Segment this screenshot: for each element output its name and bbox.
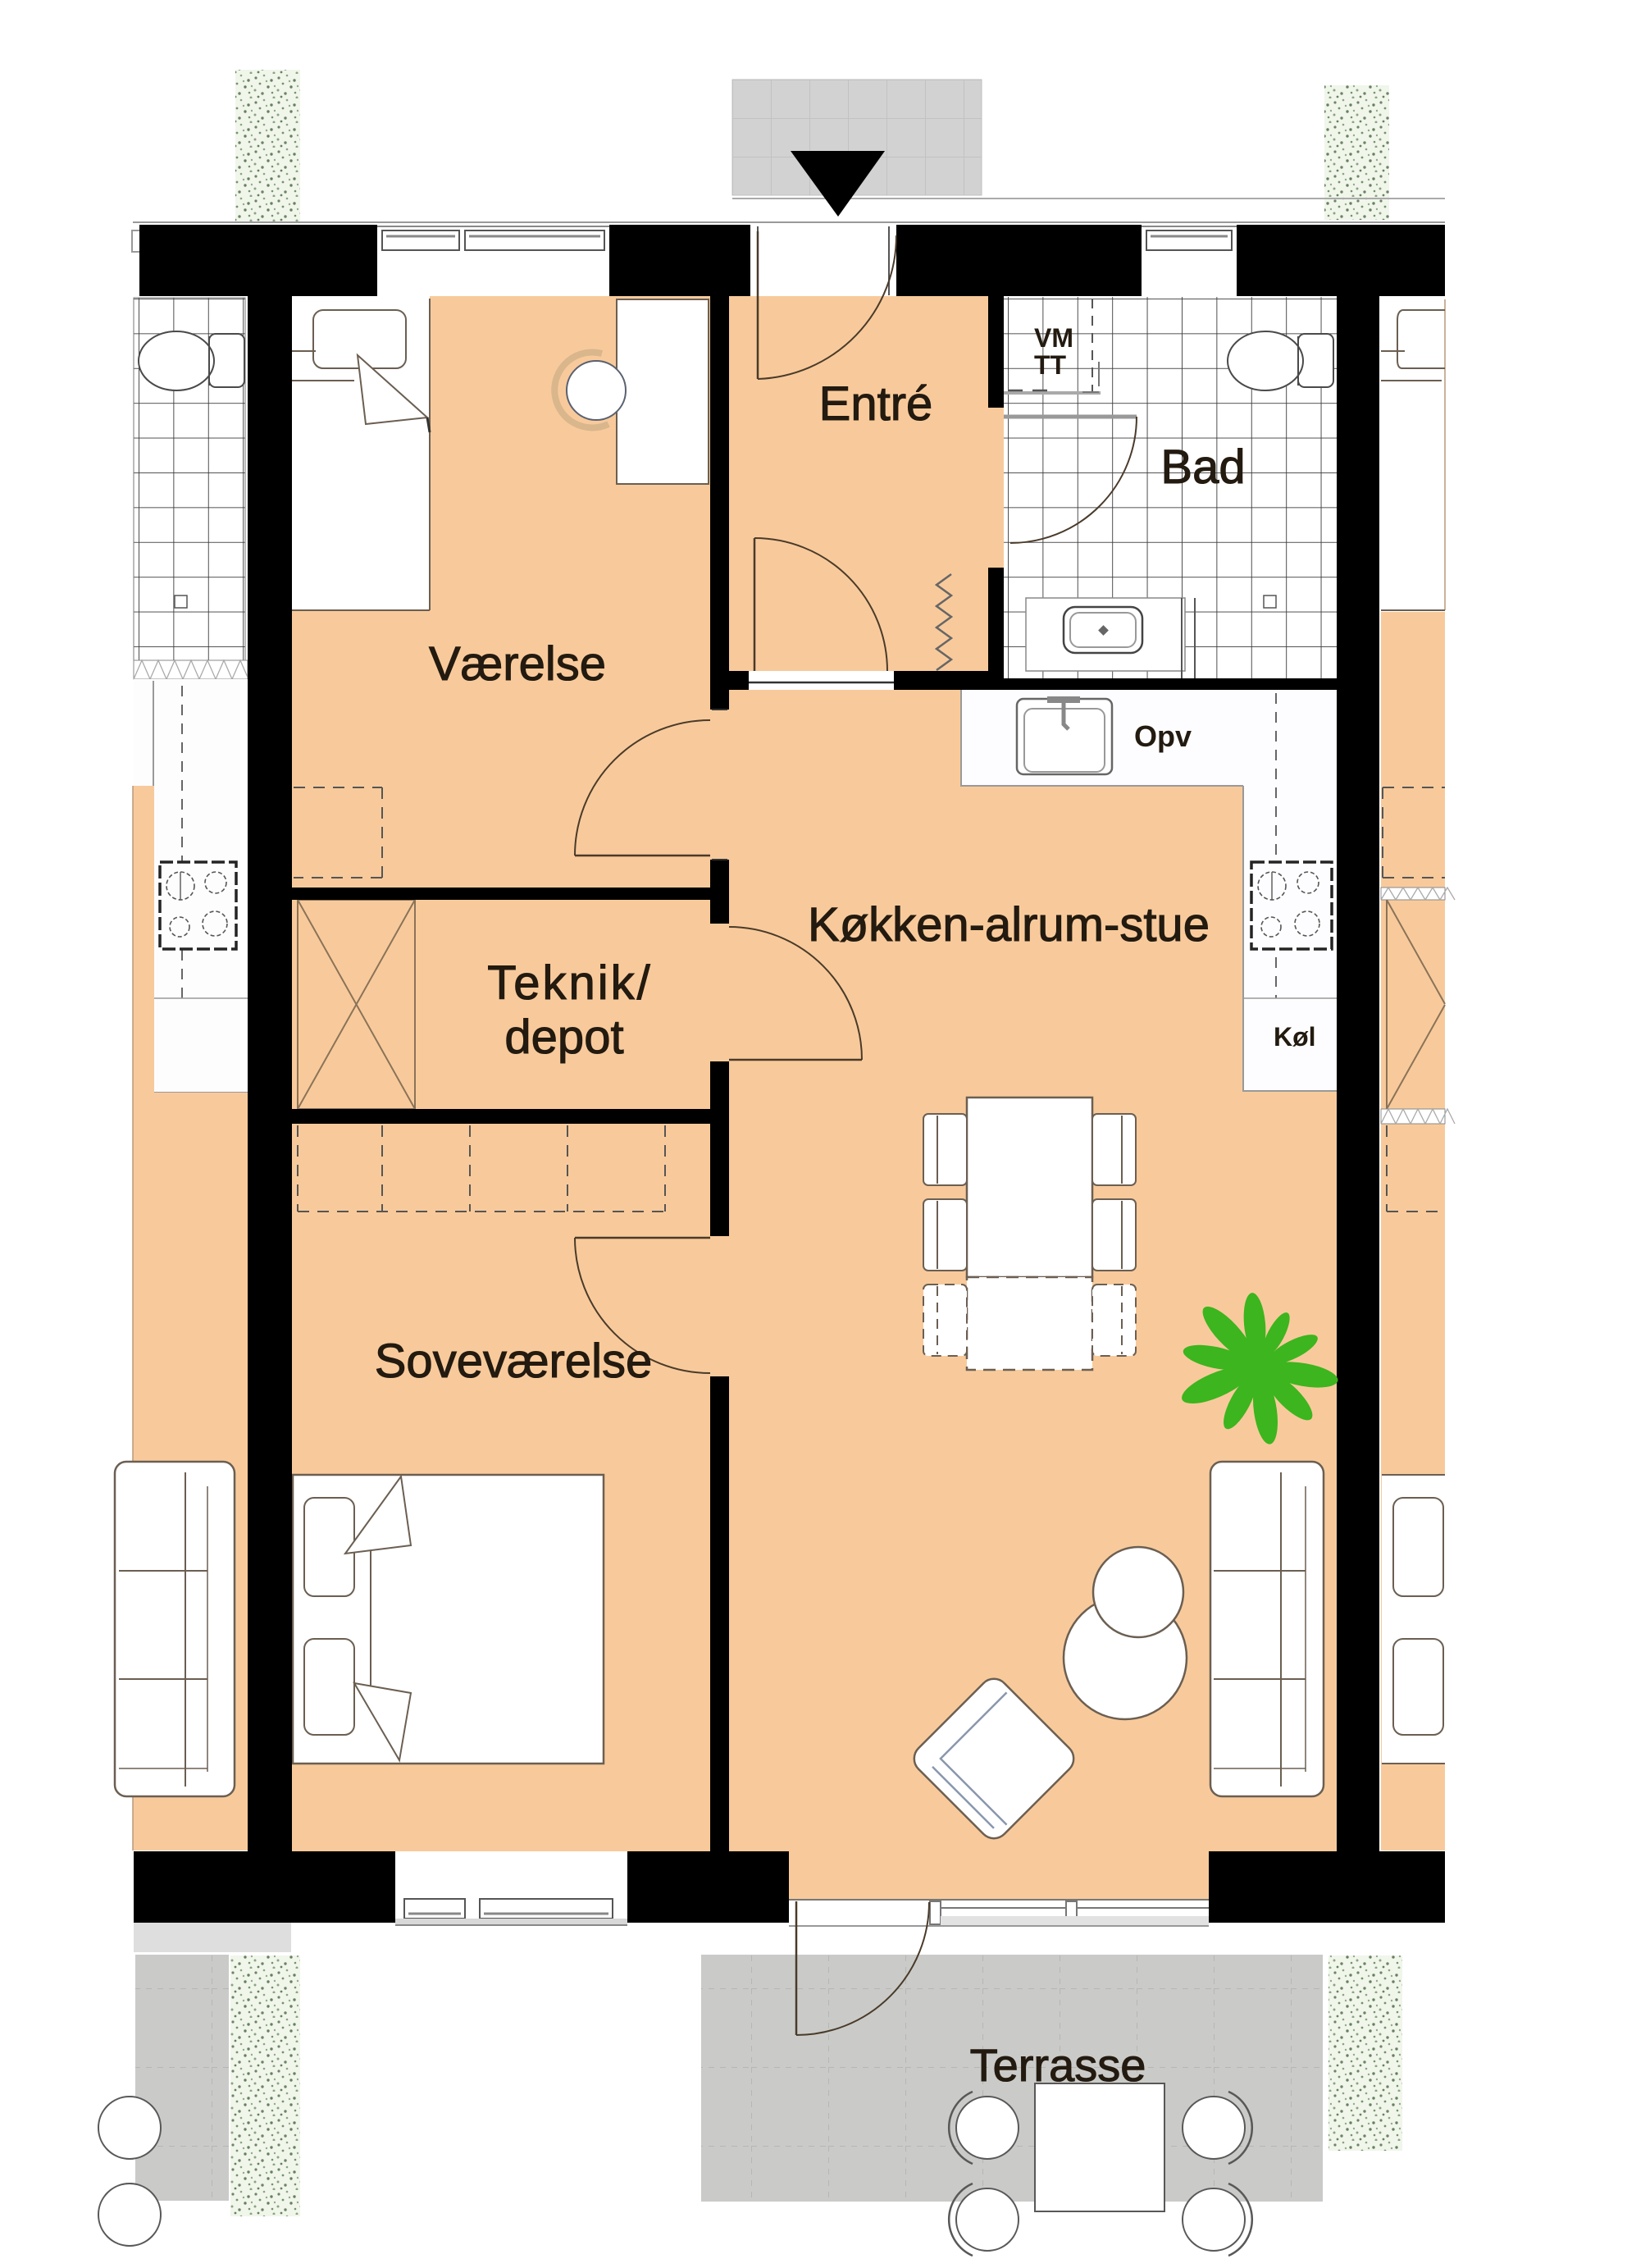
- svg-text:Teknik/: Teknik/: [487, 956, 653, 1010]
- svg-text:Værelse: Værelse: [429, 637, 606, 691]
- svg-text:Opv: Opv: [1134, 719, 1192, 753]
- svg-text:Bad: Bad: [1160, 440, 1245, 494]
- svg-text:VM: VM: [1034, 323, 1073, 353]
- svg-text:Entré: Entré: [819, 377, 933, 431]
- svg-text:Køkken-alrum-stue: Køkken-alrum-stue: [808, 898, 1210, 951]
- svg-text:Køl: Køl: [1274, 1022, 1316, 1052]
- svg-text:Terrasse: Terrasse: [970, 2039, 1146, 2091]
- svg-text:TT: TT: [1034, 350, 1067, 380]
- svg-text:Soveværelse: Soveværelse: [375, 1335, 652, 1388]
- svg-text:depot: depot: [504, 1011, 623, 1064]
